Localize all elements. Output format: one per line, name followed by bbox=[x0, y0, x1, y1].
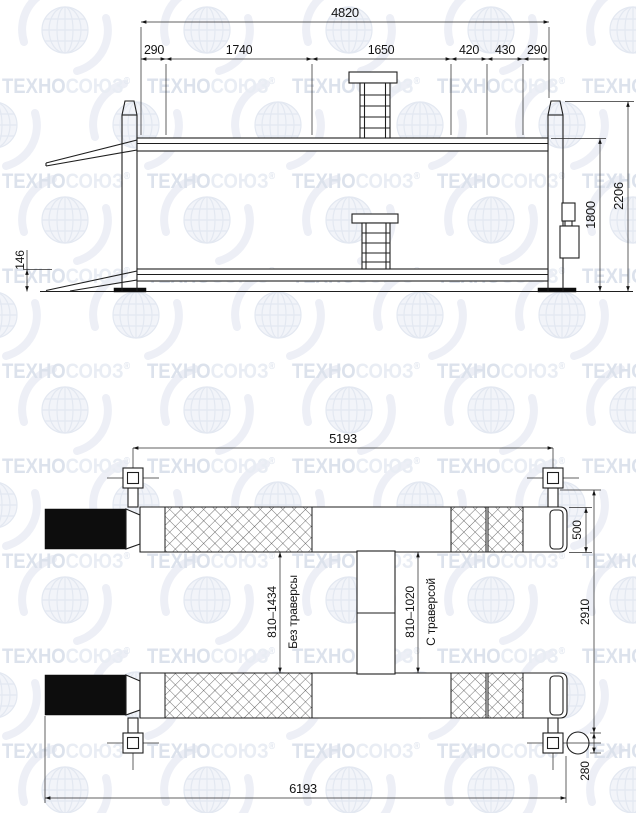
approach-ramp-bottom bbox=[45, 675, 126, 715]
dim-lift-height: 1800 bbox=[551, 139, 606, 292]
runway-plan-top bbox=[45, 507, 567, 552]
dim-overall-length-label: 4820 bbox=[331, 5, 359, 20]
power-unit bbox=[560, 203, 579, 258]
approach-ramp-top bbox=[45, 509, 126, 549]
dim-platform-profile-label: 146 bbox=[13, 250, 27, 270]
post-top-left bbox=[107, 448, 159, 507]
dim-overall-width-label: 2910 bbox=[578, 599, 592, 625]
plan-view: 5193 bbox=[45, 431, 601, 803]
dim-seg-4-label: 430 bbox=[495, 43, 515, 57]
runway-plan-bottom bbox=[45, 673, 567, 718]
wheel-stop bbox=[550, 510, 563, 549]
tread-plate bbox=[165, 507, 312, 552]
dim-column-height: 2206 bbox=[565, 102, 634, 292]
dim-motor-offset-label: 280 bbox=[578, 761, 592, 781]
side-view: 4820 290 1740 1650 420 430 290 bbox=[13, 5, 634, 292]
dim-overall-length-plan: 6193 bbox=[45, 716, 566, 803]
dim-column-height-label: 2206 bbox=[611, 182, 626, 210]
dim-seg-5-label: 290 bbox=[527, 43, 547, 57]
post-top-right bbox=[527, 448, 579, 507]
left-column bbox=[122, 101, 137, 291]
runway-raised bbox=[137, 138, 548, 151]
traverse-beam bbox=[357, 551, 395, 674]
dim-segment-chain: 290 1740 1650 420 430 290 bbox=[141, 43, 549, 135]
right-column bbox=[548, 101, 563, 291]
dim-runway-width-label: 500 bbox=[570, 520, 584, 540]
dim-seg-2-label: 1650 bbox=[368, 43, 395, 57]
dim-overall-length: 4820 bbox=[141, 5, 549, 135]
jacking-beam-raised bbox=[349, 72, 397, 138]
dim-seg-3-label: 420 bbox=[459, 43, 479, 57]
right-column-base-pad bbox=[538, 288, 576, 292]
runway-lowered bbox=[137, 269, 548, 281]
tread-plate bbox=[451, 673, 486, 718]
jacking-beam-lowered bbox=[352, 214, 398, 269]
dim-track-without-traverse-range: 810–1434 bbox=[265, 586, 279, 638]
dim-track-without-traverse-caption: Без траверсы bbox=[286, 575, 300, 649]
ramp-raised bbox=[46, 140, 137, 166]
tread-plate bbox=[165, 673, 312, 718]
dim-span-post-centers: 5193 bbox=[133, 431, 553, 448]
dim-overall-length-plan-label: 6193 bbox=[289, 781, 317, 796]
dim-runway-width: 500 bbox=[569, 508, 592, 553]
dim-seg-0-label: 290 bbox=[144, 43, 164, 57]
tread-plate bbox=[488, 507, 523, 552]
dim-seg-1-label: 1740 bbox=[226, 43, 253, 57]
dim-track-with-traverse: 810–1020 С траверсой bbox=[403, 552, 438, 673]
wheel-stop bbox=[550, 676, 563, 715]
dim-lift-height-label: 1800 bbox=[583, 201, 598, 229]
dim-track-without-traverse: 810–1434 Без траверсы bbox=[265, 552, 300, 673]
tread-plate bbox=[451, 507, 486, 552]
post-bottom-left bbox=[107, 718, 159, 770]
dim-track-with-traverse-caption: С траверсой bbox=[424, 578, 438, 646]
tread-plate bbox=[488, 673, 523, 718]
left-column-base-pad bbox=[114, 288, 146, 292]
technical-drawing-page: ТЕХНОСОЮЗ®ТЕХНОСОЮЗ®ТЕХНОСОЮЗ®ТЕХНОСОЮЗ®… bbox=[0, 0, 636, 813]
dim-track-with-traverse-range: 810–1020 bbox=[403, 586, 417, 638]
dim-platform-profile: 146 bbox=[13, 250, 52, 292]
lift-drawing-svg: 4820 290 1740 1650 420 430 290 bbox=[0, 0, 636, 813]
dim-span-post-centers-label: 5193 bbox=[329, 431, 357, 446]
